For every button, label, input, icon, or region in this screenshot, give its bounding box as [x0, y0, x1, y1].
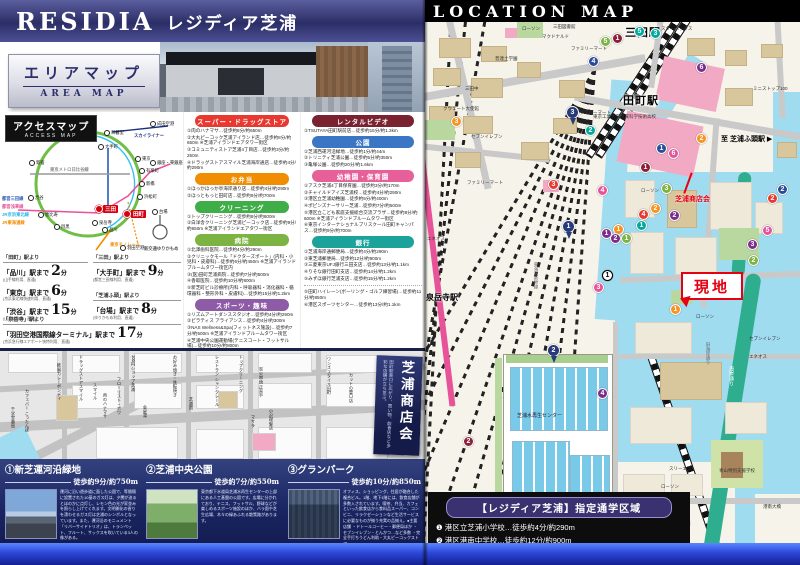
school-district-title: 【レジディア芝浦】指定通学区域: [446, 497, 672, 518]
map-badge: 1: [621, 233, 632, 244]
map-badge: 1: [612, 33, 623, 44]
shop-label: 100円ショップ芝浦: [130, 355, 136, 391]
spot-walk: 徒歩約7分/約550m: [215, 477, 279, 487]
deco-shape: 徒歩約7分/約550m: [146, 477, 279, 487]
map-badge: 2: [669, 210, 680, 221]
list-item: ⑥東京インターナショナルプリスクール田町キャンパス…徒歩約9分/約700m: [304, 222, 422, 233]
station-label: 日暮里: [104, 130, 124, 136]
route-group: 「三田」駅より 「大手町」駅まで 9 分 (都営三田線利用、直通): [93, 254, 181, 283]
shop-label: ドラッグストアスマイル: [78, 355, 84, 401]
deco-shape: [124, 211, 130, 217]
map-label: 海岸通り: [728, 366, 735, 386]
deco-shape: 大手町: [105, 144, 118, 150]
deco-shape: [510, 367, 608, 431]
banner-subtitle: 田町駅東口に広がり、買い物、飲食店など多彩な店舗が立ち並ぶ。: [379, 359, 394, 450]
shop-label: 金星湯: [142, 405, 148, 418]
deco-shape: [5, 482, 71, 483]
list-item: ④ポピンズナーサリー芝浦…徒歩約7分/約500m: [304, 203, 422, 209]
map-badge: 4: [588, 56, 599, 67]
map-label: マクドナルド: [542, 34, 569, 40]
shop-association-banner: 芝浦商店会 田町駅東口に広がり、買い物、飲食店など多彩な店舗が立ち並ぶ。: [373, 355, 422, 456]
list-item: ②トリニティ芝浦公園…徒歩約5分/約350m: [304, 155, 422, 161]
station-label: 大手町: [98, 144, 118, 150]
list-item: ①TSUTAYA田町駅前店…徒歩約15分/約1.3km: [304, 128, 422, 134]
map-badge: 1: [656, 143, 667, 154]
route-from: 「三田」駅より: [93, 254, 181, 263]
station-label: 台場: [152, 209, 168, 215]
station-label: 羽田空港: [120, 245, 144, 251]
route-min: 15: [51, 304, 70, 317]
line-label: スカイライナー: [134, 133, 164, 139]
deco-shape: 新宿: [36, 160, 45, 166]
map-badge: 1: [636, 220, 647, 231]
deco-shape: [725, 402, 767, 434]
list-item: ①芝浦海岸通郵便局…徒歩約4分/約290m: [304, 249, 422, 255]
deco-shape: [433, 68, 461, 86]
map-badge: 2: [748, 255, 759, 266]
section-header-park: 公園: [312, 136, 414, 148]
access-map: アクセスマップ ACCESS MAP 池袋新宿渋谷恵比寿目黒品川日暮里成田空港大…: [0, 112, 183, 252]
map-badge: 3: [661, 183, 672, 194]
spot-number: ①: [5, 465, 15, 476]
deco-shape: [8, 353, 58, 373]
deco-shape: 運河に沿い遊歩道に面した公園で、等間隔に設置された10基のガス灯は、夕闇が迫ると…: [5, 489, 138, 541]
deco-shape: [761, 44, 783, 58]
deco-shape: 渋谷: [35, 195, 44, 201]
map-label: 東京工業大学附属科学技術高校: [593, 114, 656, 120]
route-item: 「台場」駅まで 8 分: [93, 303, 181, 316]
deco-shape: [630, 232, 664, 274]
shop-label: お好み焼き・鉄板焼き: [172, 355, 178, 397]
station-label: 目黒: [54, 224, 70, 230]
list-item: ③亀塚公園…徒歩約20分/約1.6km: [304, 162, 422, 168]
deco-shape: [258, 383, 312, 409]
deco-shape: 成田空港: [157, 121, 174, 127]
section-header-cleaning: クリーニング: [195, 201, 289, 213]
map-label: 田町駅: [623, 92, 659, 108]
deco-shape: [38, 212, 44, 218]
map-label: 青山特別支援学校: [719, 468, 755, 474]
map-badge: 6: [696, 62, 707, 73]
station-label: 銀座・東銀座: [150, 160, 183, 166]
shop-label: トップクリーニング: [238, 355, 244, 393]
deco-shape: オフィス、ショッピング、住居が融合した複合ビル。1階、地下1階には、飲食店舗が多…: [288, 489, 421, 547]
list-item: ⑤新芝町ビル診療所(内科・呼吸器科・消化器科・循環器科・整形外科・皮膚科)…徒歩…: [187, 285, 297, 296]
deco-shape: [725, 50, 747, 66]
list-item: ①肉のハナマサ…徒歩約8分/約650m: [187, 128, 297, 134]
deco-shape: [36, 132, 140, 236]
map-badge: 3: [747, 239, 758, 250]
deco-shape: 台場: [159, 209, 168, 215]
map-label: 三田中: [465, 86, 479, 92]
deco-shape: 徒歩約9分/約750m: [5, 477, 138, 487]
deco-shape: レンタルビデオ ①TSUTAYA田町駅前店…徒歩約15分/約1.3km: [304, 115, 422, 134]
location-map: 現地 【レジディア芝浦】指定通学区域 ❶ 港区立芝浦小学校…徒歩約4分/約290…: [425, 22, 800, 543]
route-dest: 「東京」駅まで: [3, 287, 49, 297]
list-item: ③三菱東京UFJ銀行三田支店…徒歩約13分/約1.1km: [304, 262, 422, 268]
shop-label: スマイル: [92, 383, 98, 400]
map-badge: 5: [634, 26, 645, 37]
deco-shape: [196, 429, 244, 459]
deco-shape: [150, 160, 156, 166]
route-group: 「泉岳寺」駅より 「羽田空港国際線ターミナル」駅まで 17 分 (京浜急行線エア…: [3, 316, 181, 345]
spot-walk: 徒歩約9分/約750m: [74, 477, 138, 487]
route-min: 9: [148, 265, 158, 278]
spot-number: ③: [288, 465, 298, 476]
route-from: 「泉岳寺」駅より: [3, 316, 181, 325]
school-district-list: ❶ 港区立芝浦小学校…徒歩約4分/約290m❷ 港区港南中学校…徒歩約12分/約…: [436, 522, 682, 543]
deco-shape: 三田: [103, 205, 118, 213]
map-badge: 3: [451, 116, 462, 127]
deco-shape: [660, 362, 722, 400]
map-label: 泉岳寺駅: [426, 292, 458, 303]
route-dest: 「品川」駅まで: [3, 267, 49, 277]
station-label: 恵比寿: [38, 212, 58, 218]
deco-shape: クリーニング ①トップクリーニング…徒歩約8分/約600m②白洋舎クリーニング芝…: [187, 201, 297, 232]
list-item: ②チャイルドアイズ芝浦校…徒歩約4分/約290m: [304, 190, 422, 196]
deco-shape: 病院 ①北澤歯科医院…徒歩約4分/約290m②クリニックモール「ドクターズポート…: [187, 234, 297, 297]
spot-2: ②芝浦中央公園 徒歩約7分/約550m 東京都下水道局芝浦水再生センターの上部に…: [146, 462, 279, 539]
station-label: 成田空港: [150, 121, 174, 127]
map-badge: 4: [638, 209, 649, 220]
route-min: 6: [51, 285, 61, 298]
map-badge: 6: [668, 148, 679, 159]
route-dest: 「羽田空港国際線ターミナル」駅まで: [3, 329, 115, 339]
map-pin: 2: [547, 344, 560, 357]
deco-shape: [687, 38, 715, 56]
route-unit: 分: [61, 288, 67, 297]
access-map-label: アクセスマップ ACCESS MAP: [5, 115, 97, 142]
shop-label: 小沢理髪店: [268, 409, 274, 430]
deco-shape: [135, 156, 141, 162]
deco-shape: [120, 245, 126, 251]
brochure-sheet: RESIDIA レジディア芝浦 エリアマップ AREA MAP アクセスマップ …: [0, 0, 800, 565]
map-label: 港南大橋: [763, 504, 781, 510]
list-item: ④芝浦中央公園運動場(テニスコート・フットサル場)…徒歩約10分/約800m: [187, 338, 297, 348]
station-label: 新橋: [139, 181, 155, 187]
list-item: ③NAS Wellness&Spa(フィットネス施設)…徒歩約7分/約500m …: [187, 325, 297, 336]
deco-shape: [288, 482, 349, 483]
spot-1: ①新芝運河沿緑地 徒歩約9分/約750m 運河に沿い遊歩道に面した公園で、等間隔…: [5, 462, 138, 541]
line-label: 新交通ゆりかもめ: [144, 246, 178, 252]
route-from: 「田町」駅より: [3, 254, 88, 263]
list-item: ⑤田町ハイレーン(ボーリング・ゴルフ練習場)…徒歩約11分/約850m: [304, 289, 422, 300]
water-plant: [503, 354, 613, 506]
route-dest: 「台場」駅まで: [93, 305, 139, 315]
section-header-bank: 銀行: [312, 236, 414, 248]
route-dest: 「大手町」駅まで: [93, 267, 146, 277]
left-page: RESIDIA レジディア芝浦 エリアマップ AREA MAP アクセスマップ …: [0, 0, 425, 565]
deco-shape: 目黒: [61, 224, 70, 230]
list-item: ②大丸ピーコック芝浦アイランド店…徒歩約8分/約650m ※芝浦アイランドエアタ…: [187, 135, 297, 146]
map-badge: 1: [670, 304, 681, 315]
route-note: (京浜急行線エアポート快特利用、直通): [3, 340, 181, 345]
deco-shape: 泉岳寺: [99, 220, 112, 226]
deco-shape: [725, 88, 753, 106]
deco-shape: [160, 97, 368, 112]
map-label: ファミリーマート: [571, 46, 607, 52]
shop-label: ワンズスタイル田町: [326, 357, 332, 395]
map-badge: 3: [650, 28, 661, 39]
map-badge: 5: [600, 36, 611, 47]
map-badge: 3: [548, 179, 559, 190]
deco-shape: [506, 355, 608, 363]
station-label: 渋谷: [28, 195, 44, 201]
facility-list-super: ①肉のハナマサ…徒歩約8分/約650m②大丸ピーコック芝浦アイランド店…徒歩約8…: [187, 128, 297, 171]
facility-list-bento: ①ほっかほっか亭海岸通り店…徒歩約4分/約290m②ほっともっと田町店…徒歩約9…: [187, 186, 297, 198]
facility-list-park: ①芝浦西運河沿緑地…徒歩約1分/約44m②トリニティ芝浦公園…徒歩約5分/約35…: [304, 149, 422, 168]
map-badge: 2: [585, 125, 596, 136]
list-item: ⑤港区立こども家庭支援総合交流プラザ…徒歩約8分/約600m ※芝浦アイランドブ…: [304, 210, 422, 221]
deco-shape: [439, 38, 471, 58]
deco-shape: [710, 182, 752, 230]
deco-shape: ①新芝運河沿緑地: [5, 462, 138, 476]
list-item: ④りそな銀行田町支店…徒歩約14分/約1.2km: [304, 269, 422, 275]
facility-list-bank: ①芝浦海岸通郵便局…徒歩約4分/約290m②東芝浦郵便局…徒歩約12分/約900…: [304, 249, 422, 282]
route-item: 「大手町」駅まで 9 分: [93, 265, 181, 278]
spot-walk: 徒歩約10分/約850m: [352, 477, 421, 487]
map-label: ローソン: [661, 484, 679, 490]
deco-shape: [316, 351, 321, 462]
route-item: 「東京」駅まで 6 分: [3, 285, 88, 298]
deco-shape: 銀行 ①芝浦海岸通郵便局…徒歩約4分/約290m②東芝浦郵便局…徒歩約12分/約…: [304, 236, 422, 282]
deco-shape: [153, 225, 167, 239]
list-item: ⑤みずほ銀行芝浦支店…徒歩約15分/約1.2km: [304, 276, 422, 282]
route-dest: 「渋谷」駅まで: [3, 306, 49, 316]
spot-name: グランパーク: [298, 465, 355, 476]
list-item: ❶ 港区立芝浦小学校…徒歩約4分/約290m: [436, 522, 682, 533]
deco-shape: [28, 195, 34, 201]
deco-shape: [98, 144, 104, 150]
deco-shape: ②芝浦中央公園: [146, 462, 279, 476]
map-badge: 3: [593, 282, 604, 293]
deco-shape: [512, 441, 570, 499]
deco-shape: スーパー・ドラッグストア ①肉のハナマサ…徒歩約8分/約650m②大丸ピーコック…: [187, 115, 297, 171]
deco-shape: 有楽町: [146, 168, 159, 174]
map-badge: 2: [767, 193, 778, 204]
deco-shape: [635, 322, 692, 354]
route-item: 「羽田空港国際線ターミナル」駅まで 17 分: [3, 327, 181, 340]
route-unit: 分: [151, 306, 157, 315]
deco-shape: 日暮里: [111, 130, 124, 136]
location-map-title: LOCATION MAP: [433, 2, 638, 21]
deco-shape: [196, 355, 244, 373]
map-label: ファミリーマート: [467, 180, 503, 186]
deco-shape: [150, 121, 156, 127]
station-label: 浜松町: [137, 194, 157, 200]
building-photo: [160, 42, 425, 112]
list-item: ①北澤歯科医院…徒歩約4分/約290m: [187, 247, 297, 253]
deco-shape: [166, 52, 316, 65]
facility-list-kindergarten: ①アスク芝浦4丁目保育園…徒歩約3分/約170m②チャイルドアイズ芝浦校…徒歩約…: [304, 183, 422, 234]
list-item: ③コミュニティストア芝浦4丁目店…徒歩約3分/約250m: [187, 147, 297, 158]
map-badge: 1: [602, 270, 613, 281]
deco-shape: 新橋: [146, 181, 155, 187]
map-pin: 1: [562, 220, 575, 233]
map-label: スターバックス: [661, 26, 692, 32]
deco-shape: [721, 452, 743, 478]
deco-shape: 公園 ①芝浦西運河沿緑地…徒歩約1分/約44m②トリニティ芝浦公園…徒歩約5分/…: [304, 136, 422, 168]
shop-label: 芝浦園: [188, 397, 194, 410]
deco-shape: [495, 358, 502, 498]
list-item: ④香取医院…徒歩約10分/約800m: [187, 278, 297, 284]
map-badge: 2: [650, 203, 661, 214]
map-badge: 1: [640, 162, 651, 173]
deco-shape: [675, 237, 717, 275]
list-item: ①芝浦西運河沿緑地…徒歩約1分/約44m: [304, 149, 422, 155]
deco-shape: スポーツ・趣味 ①リズムアートダンススタジオ…徒歩約4分/約290m②ピラティス…: [187, 299, 297, 348]
map-label: スリーエフ: [669, 466, 692, 472]
deco-shape: [104, 130, 110, 136]
map-badge: 2: [777, 184, 788, 195]
route-min: 8: [141, 303, 151, 316]
line-label: JR東海道線: [2, 220, 25, 226]
deco-shape: [29, 160, 35, 166]
station-label: 泉岳寺: [92, 220, 112, 226]
shop-label: 千学堂薬局: [10, 407, 16, 428]
bottom-band: [0, 543, 800, 565]
deco-shape: 幼稚園・保育園 ①アスク芝浦4丁目保育園…徒歩約3分/約170m②チャイルドアイ…: [304, 170, 422, 234]
deco-shape: [137, 194, 143, 200]
map-badge: 4: [597, 388, 608, 399]
deco-shape: [102, 227, 108, 233]
route-from: 「芝浦ふ頭」駅より: [93, 292, 181, 301]
deco-shape: [382, 46, 412, 112]
brand-header: RESIDIA レジディア芝浦: [0, 0, 425, 42]
route-group: 「田町」駅より 「品川」駅まで 2 分 (山手線利用、直通) 「東京」駅まで 6…: [3, 254, 88, 322]
shop-label: カフェバー こったんぽ: [24, 389, 30, 432]
deco-shape: [92, 220, 98, 226]
deco-shape: [455, 152, 481, 168]
map-label: 至 芝浦ふ頭駅 ▶: [721, 134, 772, 144]
deco-shape: [517, 62, 541, 78]
shop-street-map: 芝浦商店会 田町駅東口に広がり、買い物、飲食店など多彩な店舗が立ち並ぶ。 カフェ…: [0, 348, 425, 462]
map-label: 東海道新幹線: [533, 262, 539, 289]
map-label: 普連土学園: [495, 56, 518, 62]
line-label: 東京メトロ日比谷線: [50, 167, 89, 173]
map-badge: 4: [597, 185, 608, 196]
facility-list-cleaning: ①トップクリーニング…徒歩約8分/約600m②白洋舎クリーニング芝浦ピーコック店…: [187, 214, 297, 232]
list-item: ②ピラティス アライアンス…徒歩約4分/約300m: [187, 318, 297, 324]
map-badge: 2: [463, 436, 474, 447]
shop-label: 欧風カレーボンディ: [56, 363, 62, 401]
route-unit: 分: [158, 268, 164, 277]
route-note: (山手線利用、直通): [3, 278, 88, 283]
map-label: クウェート大使館: [443, 106, 479, 112]
line-label: 都営三田線: [2, 196, 23, 202]
spot-3: ③グランパーク 徒歩約10分/約850m オフィス、ショッピング、住居が融合した…: [288, 462, 421, 547]
page-gutter: [422, 0, 428, 565]
shop-label: カットの壹口店: [348, 373, 354, 402]
banner-title: 芝浦商店会: [393, 360, 416, 452]
area-map-title-jp: エリアマップ: [9, 62, 159, 83]
map-label: 芝浦商店会: [675, 194, 710, 204]
facility-column-1: スーパー・ドラッグストア ①肉のハナマサ…徒歩約8分/約650m②大丸ピーコック…: [183, 112, 300, 348]
deco-shape: [252, 433, 276, 451]
spot-photo-granpark: [288, 489, 340, 539]
section-header-sports: スポーツ・趣味: [195, 299, 289, 311]
deco-shape: [463, 116, 493, 134]
shop-label: 炭火串焼 正直や: [258, 367, 264, 398]
list-item: ❷ 港区港南中学校…徒歩約12分/約900m: [436, 535, 682, 543]
list-item: ③(医)田町芝浦病院…徒歩約7分/約500m: [187, 272, 297, 278]
route-item: 「渋谷」駅まで 15 分: [3, 304, 88, 317]
facility-list-sports: ①リズムアートダンススタジオ…徒歩約4分/約290m②ピラティス アライアンス……: [187, 312, 297, 348]
deco-shape: [258, 353, 312, 373]
facility-list-rental: ①TSUTAYA田町駅前店…徒歩約15分/約1.3km: [304, 128, 422, 134]
facility-column-2: レンタルビデオ ①TSUTAYA田町駅前店…徒歩約15分/約1.3km 公園 ①…: [300, 112, 425, 348]
deco-shape: 銀座・東銀座: [157, 160, 183, 166]
deco-shape: 東京都下水道局芝浦水再生センターの上部にある人工基盤の公園です。広場に分かれてお…: [146, 489, 279, 539]
shop-label: レストラン シャンクレール: [214, 355, 220, 406]
deco-shape: 恵比寿: [45, 212, 58, 218]
deco-shape: [139, 181, 145, 187]
map-label: ローソン: [641, 188, 659, 194]
brand-logo-en: RESIDIA: [16, 7, 154, 36]
access-map-label-jp: アクセスマップ: [13, 118, 89, 133]
facility-list-overflow: ⑤田町ハイレーン(ボーリング・ゴルフ練習場)…徒歩約11分/約850m⑥港区スポ…: [304, 285, 422, 307]
spot-name: 芝浦中央公園: [156, 465, 213, 476]
route-unit: 分: [71, 307, 77, 316]
deco-shape: ③グランパーク: [288, 462, 421, 476]
spot-description: 東京都下水道局芝浦水再生センターの上部にある人工基盤の公園です。広場に分かれてお…: [201, 489, 279, 539]
deco-shape: [96, 427, 178, 459]
route-note: (都営三田線利用、直通): [93, 278, 181, 283]
facility-list-hospital: ①北澤歯科医院…徒歩約4分/約290m②クリニックモール「ドクターズポート」(内…: [187, 247, 297, 297]
map-label: ミニストップ100: [753, 86, 788, 92]
deco-shape: [96, 206, 102, 212]
section-header-rental: レンタルビデオ: [312, 115, 414, 127]
route-note: (京浜東北線快速利用、直通): [3, 297, 88, 302]
deco-shape: お弁当 ①ほっかほっか亭海岸通り店…徒歩約4分/約290m②ほっともっと田町店……: [187, 173, 297, 198]
deco-shape: [152, 209, 158, 215]
spot-section: ①新芝運河沿緑地 徒歩約9分/約750m 運河に沿い遊歩道に面した公園で、等間隔…: [0, 459, 425, 543]
station-label: 東京: [135, 156, 151, 162]
map-label: エネオス: [427, 236, 445, 242]
route-min: 17: [117, 327, 136, 340]
list-item: ①アスク芝浦4丁目保育園…徒歩約3分/約170m: [304, 183, 422, 189]
deco-shape: [559, 80, 585, 98]
map-pin: 3: [566, 106, 579, 119]
line-label: 都営浅草線: [2, 204, 23, 210]
deco-shape: [139, 168, 145, 174]
spot-photo-canal: [5, 489, 57, 539]
map-label: エネオス: [749, 354, 767, 360]
map-badge: 5: [762, 225, 773, 236]
line-label: JR京浜東北線: [2, 212, 29, 218]
area-map-title-box: エリアマップ AREA MAP: [8, 54, 160, 108]
deco-shape: 徒歩約10分/約850m: [288, 477, 421, 487]
map-label: 三田図書館: [553, 24, 576, 30]
right-page: LOCATION MAP: [425, 0, 800, 565]
deco-shape: [521, 142, 549, 160]
map-badge: 2: [696, 133, 707, 144]
spot-number: ②: [146, 465, 156, 476]
divider: [23, 86, 145, 87]
route-unit: 分: [61, 268, 67, 277]
station-label: 田町: [124, 210, 146, 218]
deco-shape: [630, 407, 692, 444]
list-item: ⑥港区スポーツセンター…徒歩約13分/約1.1km: [304, 302, 422, 308]
route-times: 「田町」駅より 「品川」駅まで 2 分 (山手線利用、直通) 「東京」駅まで 6…: [0, 252, 183, 348]
deco-shape: [218, 68, 264, 95]
school-district-panel: 【レジディア芝浦】指定通学区域 ❶ 港区立芝浦小学校…徒歩約4分/約290m❷ …: [428, 492, 690, 543]
list-item: ②白洋舎クリーニング芝浦ピーコック店…徒歩約9分/約650m ※芝浦アイランドエ…: [187, 220, 297, 231]
map-label: セブンイレブン: [749, 336, 781, 342]
map-label: ローソン: [696, 314, 714, 320]
station-label: 品川: [102, 227, 118, 233]
map-label: 旧海岸通り: [705, 342, 711, 365]
